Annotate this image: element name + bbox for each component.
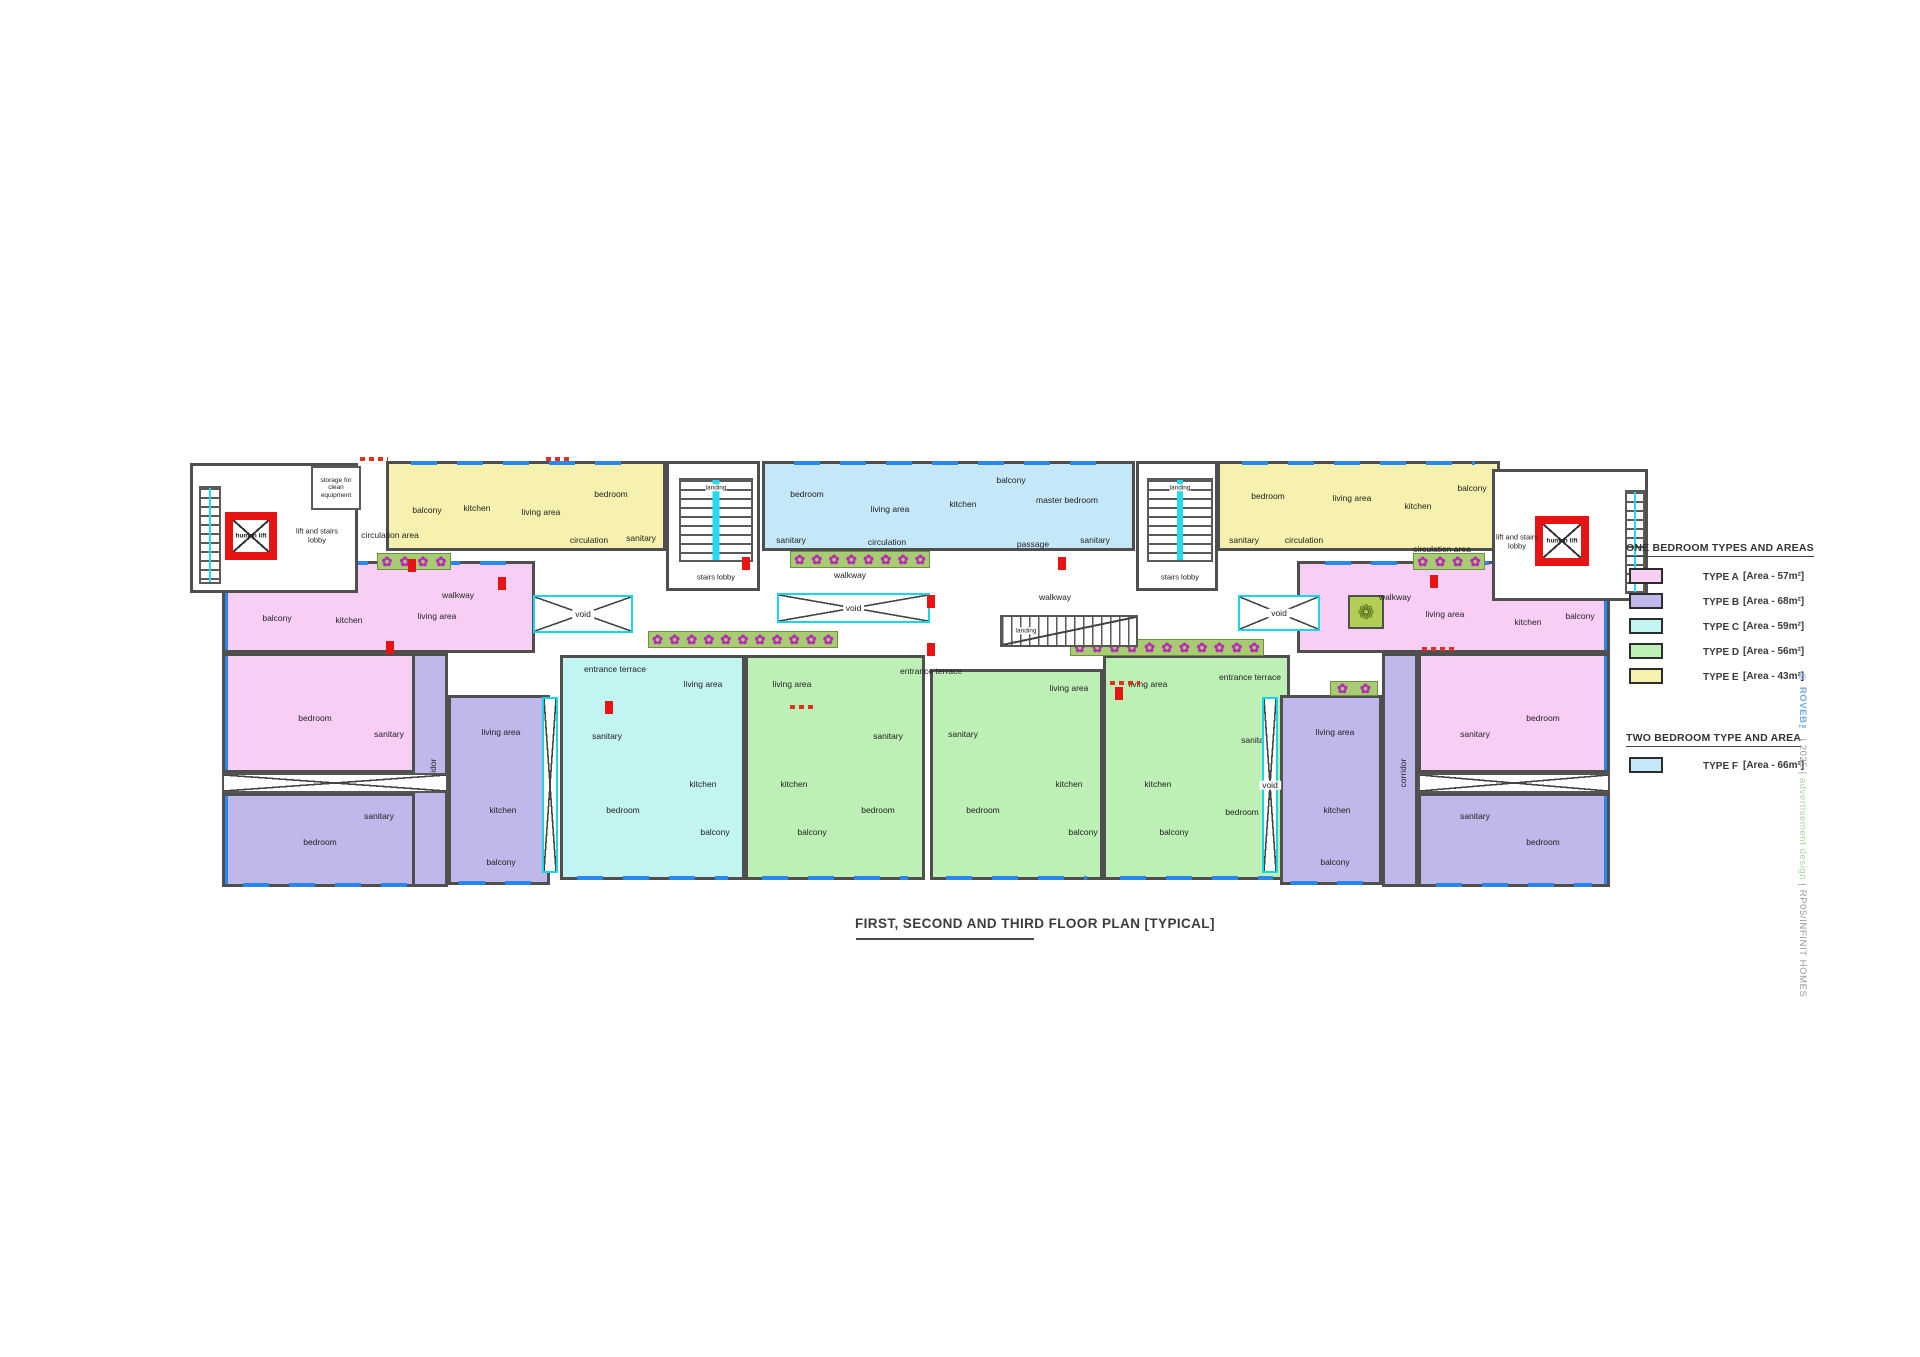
stairs-lobby-1: landingstairs lobby	[666, 461, 760, 591]
red-marker	[1430, 575, 1438, 588]
red-dashed-marker	[790, 705, 816, 709]
legend-type-label: TYPE F	[1703, 761, 1738, 772]
lift-stairs-lobby-left: human liftstorage for clean equipmentlif…	[190, 463, 358, 593]
room-label-sanitary: sanitary	[374, 730, 404, 739]
room-label-living-area: living area	[522, 508, 561, 517]
void-opening: void	[777, 593, 930, 623]
void-opening	[542, 697, 558, 873]
room-label-bedroom: bedroom	[594, 490, 628, 499]
red-marker	[1115, 687, 1123, 700]
flower-icon: ✿	[382, 555, 393, 568]
legend-area-label: [Area - 59m²]	[1743, 621, 1804, 632]
floor-plan-drawing: balconykitchenliving areabedroomcirculat…	[190, 455, 1650, 895]
lobby-label: stairs lobby	[1141, 574, 1219, 583]
unit-type-C: sanitarybedroomliving areakitchenbalcony	[560, 655, 745, 880]
legend-swatch	[1629, 668, 1663, 684]
legend-area-label: [Area - 43m²]	[1743, 671, 1804, 682]
flower-icon: ✿	[669, 633, 680, 646]
void-label: void	[1268, 609, 1290, 618]
staircase	[199, 486, 221, 584]
unit-type-B: living areakitchenbalcony	[1280, 695, 1382, 885]
room-label-balcony: balcony	[1320, 858, 1349, 867]
planter-strip: ✿✿	[1330, 681, 1378, 696]
red-marker	[408, 559, 416, 572]
room-label-kitchen: kitchen	[1145, 780, 1172, 789]
room-label-passage: passage	[1017, 540, 1049, 549]
red-marker	[742, 557, 750, 570]
room-label-kitchen: kitchen	[781, 780, 808, 789]
watermark-copyright: © ROVEB™	[1797, 672, 1808, 735]
room-label-kitchen: kitchen	[690, 780, 717, 789]
flower-icon: ✿	[755, 633, 766, 646]
flower-icon: ✿	[880, 553, 891, 566]
legend-row-TYPE-A: TYPE A[Area - 57m²]	[1626, 568, 1856, 590]
legend-swatch	[1629, 643, 1663, 659]
room-label-bedroom: bedroom	[861, 806, 895, 815]
red-marker	[927, 643, 935, 656]
flower-icon: ✿	[794, 553, 805, 566]
room-label-bedroom: bedroom	[298, 714, 332, 723]
room-label-bedroom: bedroom	[303, 838, 337, 847]
room-label-circulation: circulation	[868, 538, 906, 547]
room-label-sanitary: sanitary	[873, 732, 903, 741]
legend: ONE BEDROOM TYPES AND AREAS TYPE A[Area …	[1626, 542, 1856, 802]
room-label-balcony: balcony	[486, 858, 515, 867]
external-staircase: landing	[1000, 615, 1138, 647]
stairs-lobby-2: landingstairs lobby	[1136, 461, 1218, 591]
room-label-kitchen: kitchen	[1515, 618, 1542, 627]
legend-type-label: TYPE B	[1703, 597, 1739, 608]
flower-icon: ✿	[1144, 641, 1155, 654]
room-label-sanitary: sanitary	[1229, 536, 1259, 545]
legend-area-label: [Area - 56m²]	[1743, 646, 1804, 657]
area-label-circulation-area: circulation area	[1413, 545, 1471, 554]
human-lift-label: human lift	[229, 532, 273, 539]
flower-icon: ✿	[1179, 641, 1190, 654]
room-label-bedroom: bedroom	[790, 490, 824, 499]
storage-room-label: storage for clean equipment	[314, 477, 358, 499]
flower-icon: ✿	[823, 633, 834, 646]
room-label-balcony: balcony	[262, 614, 291, 623]
flower-icon: ✿	[1470, 555, 1481, 568]
area-label-walkway: walkway	[834, 571, 866, 580]
room-label-balcony: balcony	[1457, 484, 1486, 493]
landing-label: landing	[706, 484, 727, 491]
lobby-label: lift and stairs lobby	[1488, 533, 1546, 550]
room-label-living-area: living area	[1426, 610, 1465, 619]
unit-type-E: balconykitchenliving areabedroomcirculat…	[386, 461, 666, 551]
room-label-sanitary: sanitary	[776, 536, 806, 545]
legend-type-label: TYPE D	[1703, 647, 1739, 658]
red-marker	[386, 641, 394, 654]
room-label-circulation: circulation	[570, 536, 608, 545]
void-opening: void	[533, 595, 633, 633]
storage-room: storage for clean equipment	[311, 466, 361, 510]
legend-row-TYPE-F: TYPE F[Area - 66m²]	[1626, 757, 1856, 779]
legend-header-two-bedroom: TWO BEDROOM TYPE AND AREA	[1626, 732, 1801, 747]
flower-icon: ✿	[1435, 555, 1446, 568]
red-marker	[927, 595, 935, 608]
room-label-balcony: balcony	[700, 828, 729, 837]
void-label: void	[1259, 781, 1281, 790]
area-label-walkway: walkway	[1039, 593, 1071, 602]
flower-icon: ✿	[846, 553, 857, 566]
area-label-entrance-terrace: entrance terrace	[1219, 673, 1281, 682]
legend-type-label: TYPE E	[1703, 672, 1739, 683]
flower-icon: ✿	[1360, 682, 1371, 695]
room-label-kitchen: kitchen	[1324, 806, 1351, 815]
landing-label: landing	[1016, 627, 1037, 634]
legend-area-label: [Area - 68m²]	[1743, 596, 1804, 607]
area-label-walkway: walkway	[442, 591, 474, 600]
watermark-year: 2025	[1797, 745, 1808, 769]
flower-icon: ✿	[720, 633, 731, 646]
room-label-bedroom: bedroom	[1526, 714, 1560, 723]
room-label-living-area: living area	[418, 612, 457, 621]
legend-type-label: TYPE C	[1703, 622, 1739, 633]
flower-icon: ✿	[737, 633, 748, 646]
red-dashed-marker	[1110, 681, 1140, 685]
room-label-kitchen: kitchen	[336, 616, 363, 625]
lift-stairs-lobby-right: human liftlift and stairs lobby	[1492, 469, 1648, 601]
room-label-master-bedroom: master bedroom	[1036, 496, 1098, 505]
room-label-balcony: balcony	[1159, 828, 1188, 837]
landing-label: landing	[1170, 484, 1191, 491]
void-opening: void	[1238, 595, 1320, 631]
red-marker	[1058, 557, 1066, 570]
room-label-balcony: balcony	[1565, 612, 1594, 621]
flower-icon: ✿	[811, 553, 822, 566]
flower-icon: ✿	[1452, 555, 1463, 568]
room-label-living-area: living area	[482, 728, 521, 737]
flower-icon: ✿	[863, 553, 874, 566]
unit-type-B: living areakitchenbalcony	[448, 695, 550, 885]
legend-row-TYPE-B: TYPE B[Area - 68m²]	[1626, 593, 1856, 615]
room-label-kitchen: kitchen	[464, 504, 491, 513]
legend-area-label: [Area - 57m²]	[1743, 571, 1804, 582]
legend-swatch	[1629, 568, 1663, 584]
flower-icon: ✿	[772, 633, 783, 646]
flower-icon: ✿	[418, 555, 429, 568]
room-label-bedroom: bedroom	[606, 806, 640, 815]
room-label-living-area: living area	[1050, 684, 1089, 693]
flower-icon: ✿	[1214, 641, 1225, 654]
flower-icon: ✿	[1249, 641, 1260, 654]
room-label-living-area: living area	[871, 505, 910, 514]
unit-type-A: sanitarybedroom	[1418, 653, 1610, 773]
room-label-sanitary: sanitary	[626, 534, 656, 543]
human-lift-label: human lift	[1540, 537, 1584, 544]
watermark-sep: |	[1797, 735, 1808, 745]
legend-swatch	[1629, 593, 1663, 609]
room-label-bedroom: bedroom	[966, 806, 1000, 815]
room-label-living-area: living area	[1333, 494, 1372, 503]
room-label-kitchen: kitchen	[1056, 780, 1083, 789]
void-label: void	[572, 610, 594, 619]
watermark-project: RP05/INFINIT HOMES	[1797, 890, 1808, 998]
room-label-corridor: corridor	[1399, 759, 1408, 788]
room-label-balcony: balcony	[996, 476, 1025, 485]
room-label-kitchen: kitchen	[490, 806, 517, 815]
watermark: © ROVEB™ | 2025 | advertisement design |…	[1797, 672, 1808, 998]
hatched-gap	[222, 773, 448, 793]
hatched-gap	[1418, 773, 1610, 793]
room-label-kitchen: kitchen	[950, 500, 977, 509]
unit-type-B: corridor	[1382, 653, 1418, 887]
flower-icon: ✿	[1231, 641, 1242, 654]
planter-strip: ✿✿✿✿	[1413, 553, 1485, 570]
unit-type-D: sanitarybedroomliving areakitchenbalcony	[930, 669, 1103, 880]
flower-icon: ✿	[1196, 641, 1207, 654]
area-label-walkway: walkway	[1379, 593, 1411, 602]
room-label-living-area: living area	[1316, 728, 1355, 737]
room-label-living-area: living area	[684, 680, 723, 689]
room-label-circulation: circulation	[1285, 536, 1323, 545]
room-label-balcony: balcony	[412, 506, 441, 515]
room-label-sanitary: sanitary	[1460, 730, 1490, 739]
room-label-balcony: balcony	[1068, 828, 1097, 837]
floor-plan-sheet: balconykitchenliving areabedroomcirculat…	[0, 0, 1920, 1357]
flower-icon: ✿	[829, 553, 840, 566]
unit-type-B: corridor	[412, 653, 448, 887]
flower-icon: ✿	[789, 633, 800, 646]
room-label-sanitary: sanitary	[1460, 812, 1490, 821]
room-label-living-area: living area	[773, 680, 812, 689]
legend-header-one-bedroom: ONE BEDROOM TYPES AND AREAS	[1626, 542, 1814, 557]
planter-strip: ✿✿✿✿✿✿✿✿✿✿✿	[648, 631, 838, 648]
flower-icon: ✿	[1162, 641, 1173, 654]
watermark-design: advertisement design	[1797, 778, 1808, 880]
flower-icon: ✿	[915, 553, 926, 566]
void-label: void	[843, 604, 865, 613]
area-label-entrance-terrace: entrance terrace	[584, 665, 646, 674]
room-label-kitchen: kitchen	[1405, 502, 1432, 511]
room-label-sanitary: sanitary	[592, 732, 622, 741]
legend-row-TYPE-D: TYPE D[Area - 56m²]	[1626, 643, 1856, 665]
area-label-circulation-area: circulation area	[361, 531, 419, 540]
flower-icon: ✿	[806, 633, 817, 646]
room-label-sanitary: sanitary	[364, 812, 394, 821]
room-label-bedroom: bedroom	[1251, 492, 1285, 501]
lobby-label: lift and stairs lobby	[286, 527, 348, 544]
unit-type-F: bedroomsanitaryliving areacirculationkit…	[762, 461, 1135, 551]
legend-type-label: TYPE A	[1703, 572, 1739, 583]
room-label-balcony: balcony	[797, 828, 826, 837]
red-marker	[498, 577, 506, 590]
room-label-sanitary: sanitary	[1080, 536, 1110, 545]
red-dashed-marker	[1422, 647, 1454, 651]
watermark-sep: |	[1797, 880, 1808, 890]
flower-icon: ✿	[1337, 682, 1348, 695]
room-label-bedroom: bedroom	[1526, 838, 1560, 847]
flower-icon: ✿	[1417, 555, 1428, 568]
void-opening: void	[1262, 697, 1278, 873]
planter-strip: ✿✿✿✿✿✿✿✿	[790, 551, 930, 568]
legend-swatch	[1629, 757, 1663, 773]
flower-icon: ✿	[652, 633, 663, 646]
watermark-sep: |	[1797, 768, 1808, 778]
lobby-label: stairs lobby	[676, 574, 756, 583]
unit-type-D: living areakitchenbalconysanitarybedroom	[745, 655, 925, 880]
area-label-entrance-terrace: entrance terrace	[900, 667, 962, 676]
drawing-title: FIRST, SECOND AND THIRD FLOOR PLAN [TYPI…	[855, 916, 1215, 931]
flower-icon: ✿	[703, 633, 714, 646]
unit-type-E: bedroomsanitarycirculationliving areakit…	[1217, 461, 1500, 551]
red-dashed-marker	[360, 457, 388, 461]
flower-icon: ✿	[898, 553, 909, 566]
legend-row-TYPE-C: TYPE C[Area - 59m²]	[1626, 618, 1856, 640]
red-dashed-marker	[546, 457, 572, 461]
red-marker	[605, 701, 613, 714]
unit-type-B: sanitarybedroom	[1418, 793, 1610, 887]
legend-row-TYPE-E: TYPE E[Area - 43m²]	[1626, 668, 1856, 690]
flower-icon: ✿	[436, 555, 447, 568]
flower-icon: ✿	[686, 633, 697, 646]
title-underline	[856, 938, 1034, 940]
room-label-sanitary: sanitary	[948, 730, 978, 739]
room-label-bedroom: bedroom	[1225, 808, 1259, 817]
legend-swatch	[1629, 618, 1663, 634]
legend-area-label: [Area - 66m²]	[1743, 760, 1804, 771]
